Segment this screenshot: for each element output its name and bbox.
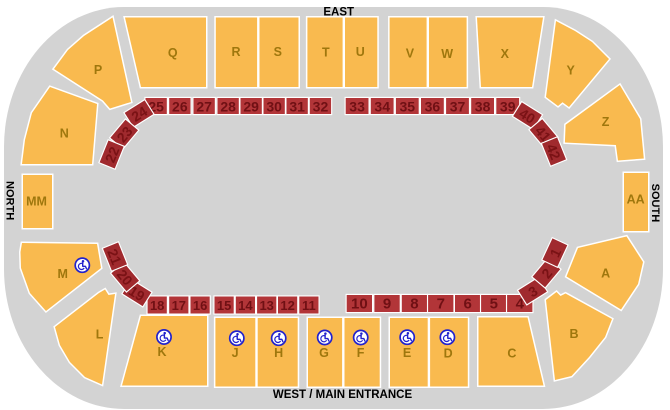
- svg-text:15: 15: [217, 298, 231, 313]
- svg-text:34: 34: [374, 99, 390, 115]
- svg-text:28: 28: [220, 99, 236, 115]
- svg-text:K: K: [157, 345, 166, 359]
- svg-text:12: 12: [280, 298, 294, 313]
- svg-text:30: 30: [266, 99, 282, 115]
- svg-text:SOUTH: SOUTH: [649, 184, 661, 223]
- svg-text:35: 35: [400, 99, 416, 115]
- svg-text:27: 27: [196, 99, 212, 115]
- svg-text:Z: Z: [602, 115, 610, 129]
- svg-text:W: W: [441, 47, 453, 61]
- svg-text:7: 7: [437, 296, 445, 313]
- svg-text:V: V: [406, 46, 415, 60]
- svg-text:J: J: [232, 346, 239, 360]
- svg-text:P: P: [94, 63, 102, 77]
- svg-text:EAST: EAST: [323, 7, 354, 19]
- svg-text:A: A: [601, 266, 610, 280]
- svg-text:6: 6: [463, 296, 471, 313]
- svg-text:17: 17: [172, 298, 186, 313]
- svg-text:E: E: [403, 346, 411, 360]
- svg-text:R: R: [231, 45, 240, 59]
- svg-text:M: M: [57, 267, 67, 281]
- svg-text:11: 11: [302, 298, 316, 313]
- svg-text:18: 18: [150, 298, 164, 313]
- svg-text:N: N: [60, 127, 69, 141]
- svg-text:T: T: [322, 46, 330, 60]
- svg-text:U: U: [356, 45, 365, 59]
- svg-text:X: X: [501, 47, 510, 61]
- svg-text:10: 10: [351, 296, 368, 313]
- svg-text:C: C: [507, 346, 516, 360]
- svg-text:14: 14: [238, 298, 253, 313]
- svg-text:D: D: [444, 346, 453, 360]
- svg-text:29: 29: [243, 99, 259, 115]
- svg-text:AA: AA: [627, 193, 645, 207]
- svg-text:MM: MM: [26, 195, 47, 209]
- svg-text:36: 36: [425, 99, 441, 115]
- svg-text:13: 13: [259, 298, 273, 313]
- svg-text:39: 39: [500, 99, 516, 115]
- svg-text:26: 26: [172, 99, 188, 115]
- svg-text:31: 31: [289, 99, 305, 115]
- svg-text:8: 8: [410, 296, 418, 313]
- svg-text:5: 5: [490, 296, 498, 313]
- svg-text:9: 9: [383, 296, 391, 313]
- svg-text:WEST / MAIN ENTRANCE: WEST / MAIN ENTRANCE: [273, 389, 413, 401]
- svg-text:L: L: [96, 328, 104, 342]
- svg-text:Y: Y: [567, 64, 576, 78]
- svg-text:NORTH: NORTH: [4, 181, 16, 220]
- svg-text:32: 32: [313, 99, 329, 115]
- svg-text:16: 16: [193, 298, 207, 313]
- svg-text:38: 38: [475, 99, 491, 115]
- svg-text:G: G: [319, 346, 329, 360]
- svg-text:S: S: [274, 45, 282, 59]
- svg-text:37: 37: [450, 99, 466, 115]
- svg-text:B: B: [569, 327, 578, 341]
- svg-text:H: H: [274, 346, 283, 360]
- svg-text:33: 33: [349, 99, 365, 115]
- svg-text:F: F: [357, 346, 365, 360]
- svg-text:Q: Q: [168, 46, 178, 60]
